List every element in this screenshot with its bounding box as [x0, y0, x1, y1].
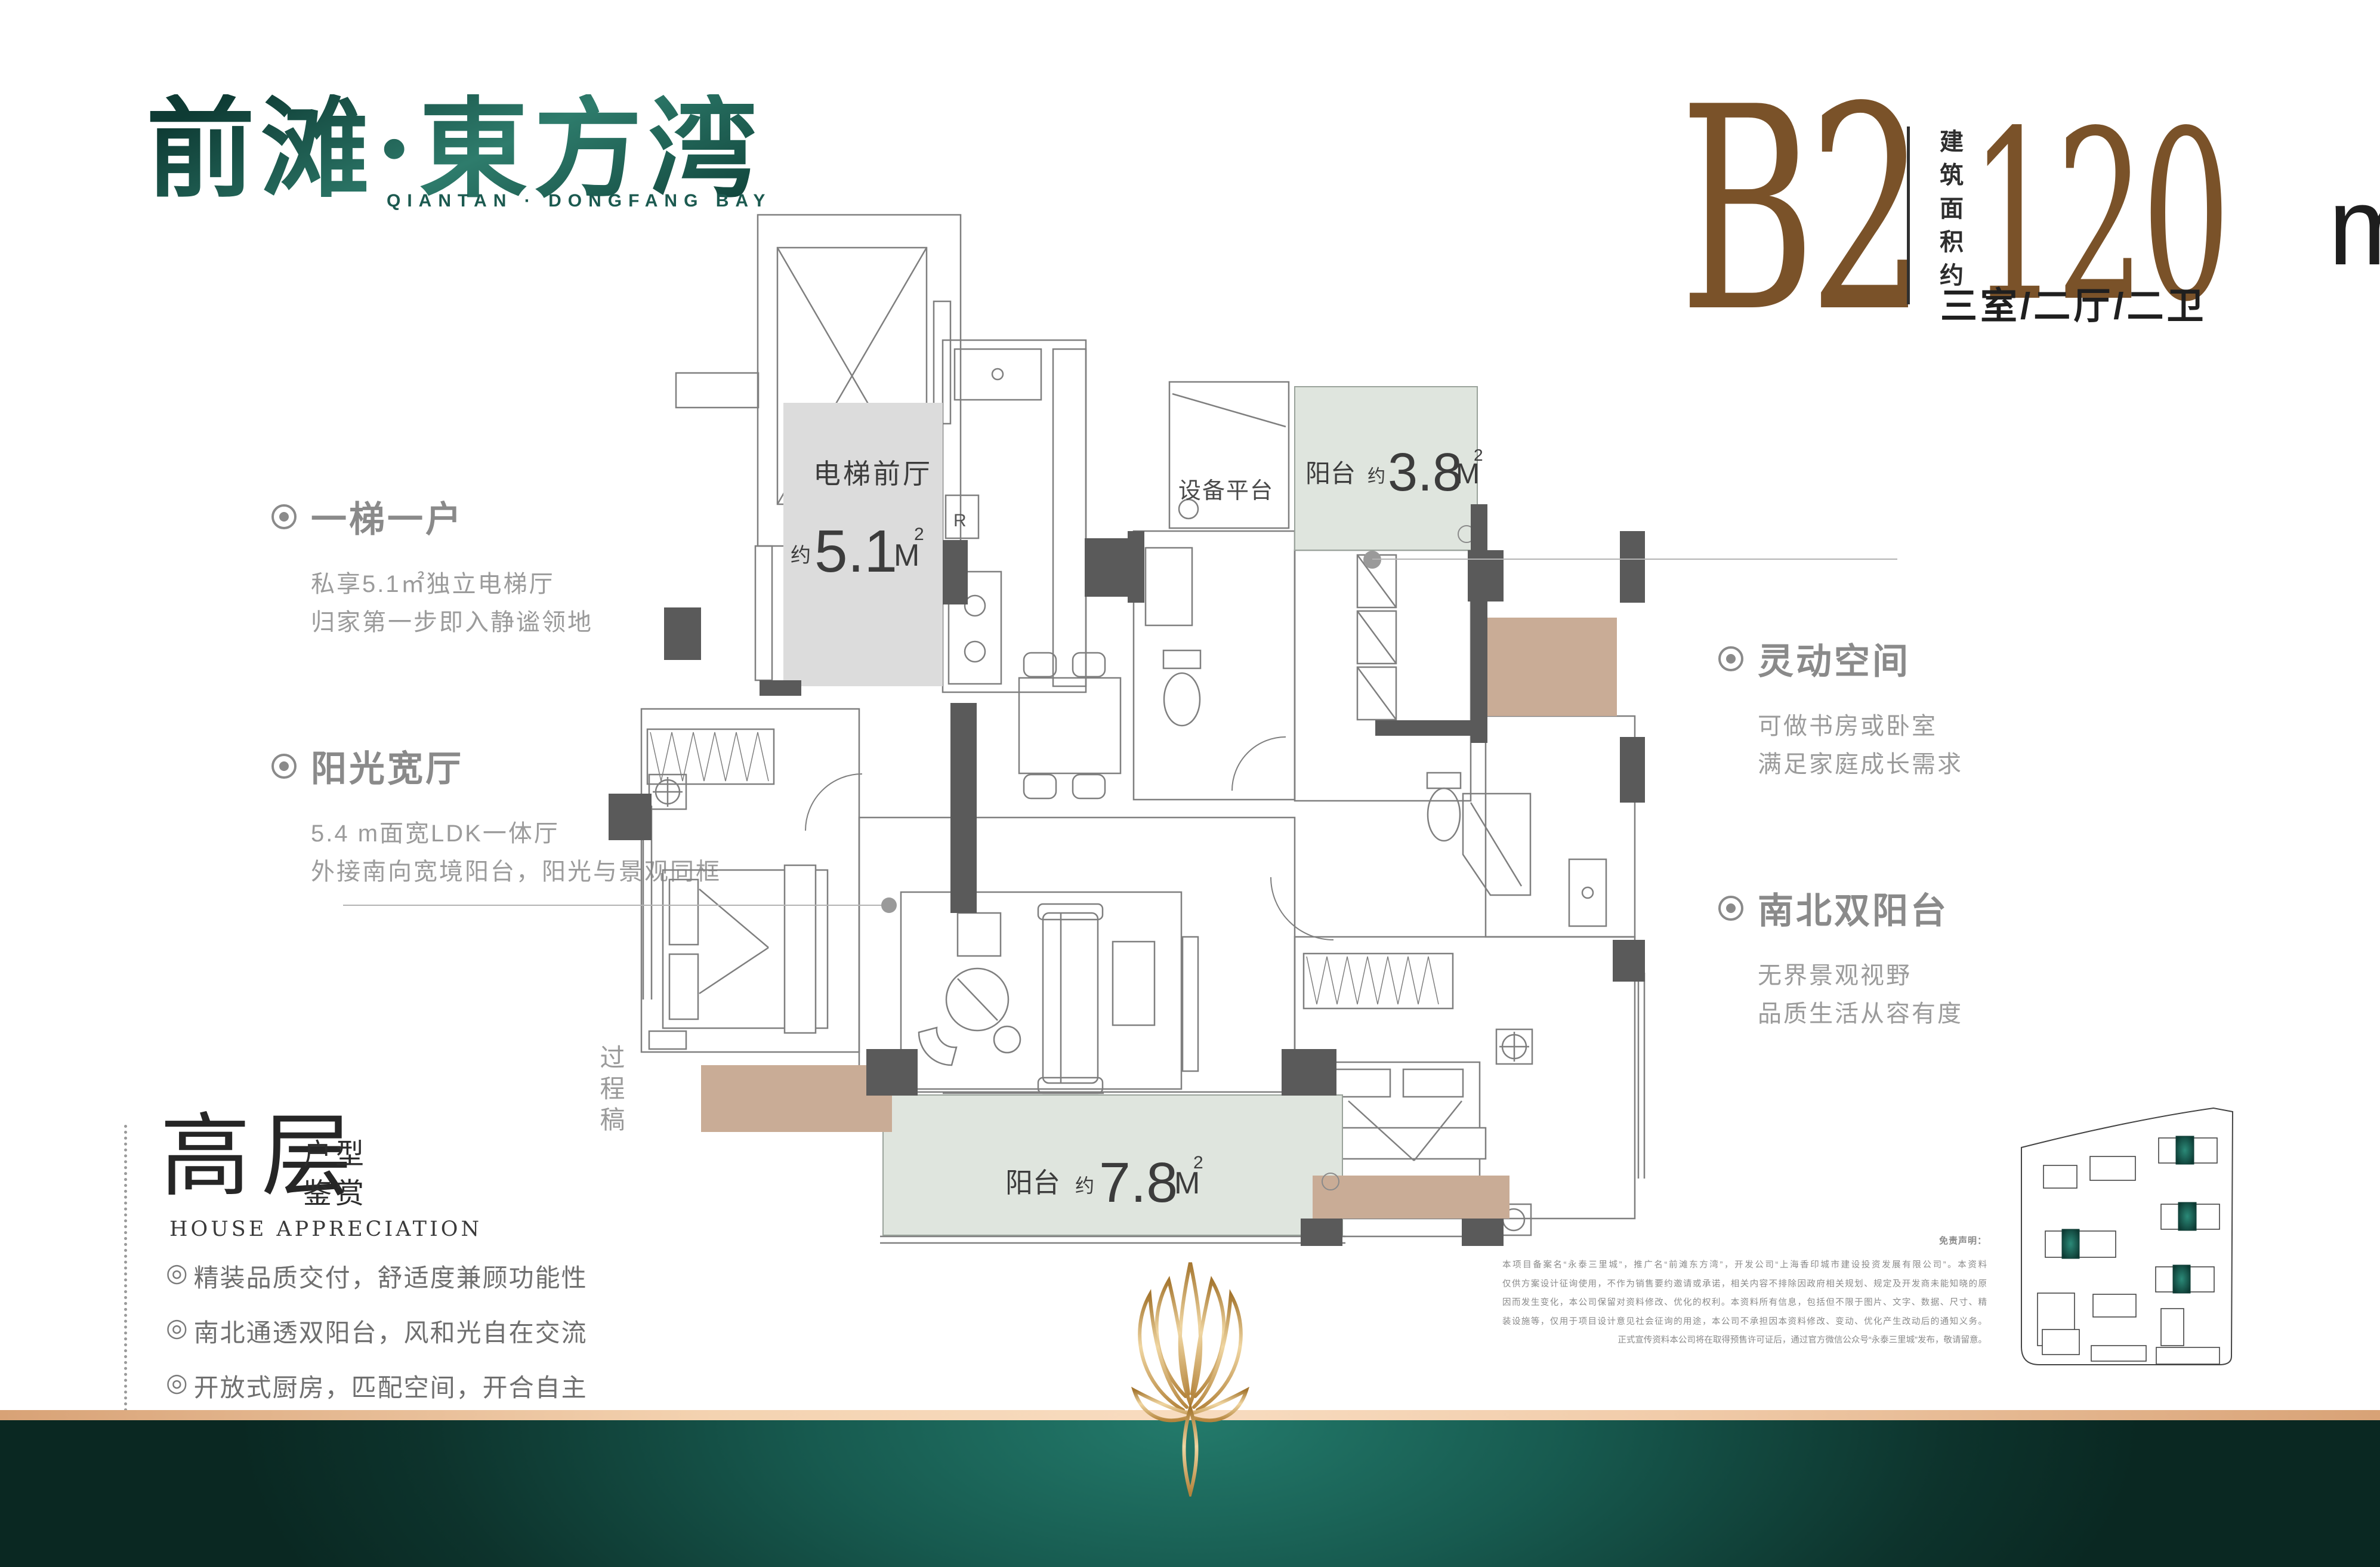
unit-room-config: 三室/二厅/二卫 [1940, 276, 2206, 329]
disclaimer-heading: 免责声明： [1502, 1234, 1987, 1247]
highlighted-unit [2062, 1229, 2079, 1258]
annotation-line: 无界景观视野 [1758, 957, 1963, 995]
appreciation-subtitle-cn: 鉴赏 [303, 1170, 368, 1211]
bathroom [1134, 531, 1295, 800]
annotation-title: 一梯一户 [311, 491, 464, 542]
appreciation-subtitle-cn: 户型 [303, 1130, 368, 1172]
annotation-line: 归家第一步即入静谧领地 [311, 603, 593, 641]
dotted-divider [124, 1125, 127, 1447]
wardrobe-fill [1313, 1176, 1510, 1219]
disclaimer-line: 仅供方案设计征询使用，不作为销售要约邀请或承诺，相关内容不排除因政府相关规划、规… [1502, 1275, 1987, 1294]
annotation-line: 满足家庭成长需求 [1758, 745, 1963, 783]
bullseye-icon [1718, 646, 1743, 671]
label-lobby-area: 5.1 [814, 518, 897, 585]
disclaimer-line: 本项目备案名“永泰三里城”，推广名“前滩东方湾”，开发公司“上海香印城市建设投资… [1502, 1256, 1987, 1275]
label-sup: 2 [914, 525, 924, 544]
annotation-double-balcony: 南北双阳台 无界景观视野 品质生活从容有度 [1718, 882, 1963, 1033]
ring-bullet-icon: ◎ [166, 1368, 189, 1397]
leader-line-living [343, 905, 889, 906]
label-approx: 约 [1075, 1175, 1094, 1196]
disclaimer: 免责声明： 本项目备案名“永泰三里城”，推广名“前滩东方湾”，开发公司“上海香印… [1502, 1234, 1987, 1350]
header-divider [1907, 127, 1910, 304]
site-plan [2011, 1095, 2249, 1381]
label-sup: 2 [1474, 446, 1483, 464]
highlighted-unit [2176, 1136, 2194, 1164]
disclaimer-line: 因而发生变化，本公司保留对资料修改、优化的权利。本资料所有信息，包括但不限于图片… [1502, 1294, 1987, 1313]
bullet-item: ◎精装品质交付，舒适度兼顾功能性 [166, 1258, 588, 1313]
bullseye-icon [1718, 896, 1743, 921]
flex-room [1295, 550, 1471, 801]
floor-plan: 电梯前厅 约 5.1 M 2 设备平台 阳台 约 3.8 M 2 阳台 约 7.… [609, 197, 1659, 1247]
label-balcony-south: 阳台 [1005, 1167, 1060, 1198]
area-unit: m [2328, 165, 2380, 288]
bedroom-left [641, 709, 859, 1052]
label-approx: 约 [791, 544, 811, 567]
highlighted-unit [2173, 1265, 2190, 1293]
bullet-item: ◎南北通透双阳台，风和光自在交流 [166, 1313, 588, 1368]
wardrobe-fill [1474, 618, 1617, 716]
annotation-title: 灵动空间 [1758, 633, 1910, 684]
label-balcony-south-area: 7.8 [1099, 1151, 1178, 1214]
appreciation-subtitle-en: HOUSE APPRECIATION [169, 1217, 482, 1241]
label-elevator-lobby: 电梯前厅 [813, 458, 933, 489]
annotation-flex-space: 灵动空间 可做书房或卧室 满足家庭成长需求 [1718, 633, 1963, 783]
label-equipment: 设备平台 [1178, 479, 1274, 504]
brand-logo-chinese: 前滩·東方湾 [146, 94, 763, 203]
sofa [1043, 913, 1098, 1083]
ring-bullet-icon: ◎ [166, 1313, 189, 1342]
annotation-line: 可做书房或卧室 [1758, 707, 1963, 745]
leader-dot [1363, 551, 1381, 569]
label-balcony-north-area: 3.8 [1388, 443, 1462, 502]
unit-code: B2 [1680, 70, 1919, 351]
annotation-line: 私享5.1㎡独立电梯厅 [311, 565, 593, 603]
annotation-title: 阳光宽厅 [311, 740, 464, 792]
wardrobe-fill [701, 1065, 892, 1132]
disclaimer-line: 装设施等，仅用于项目设计意见社会征询的用途，本公司不承担因本资料修改、变动、优化… [1502, 1313, 1987, 1332]
label-fridge: R [953, 511, 967, 530]
equipment-platform [1169, 382, 1289, 528]
annotation-line: 品质生活从容有度 [1758, 995, 1963, 1033]
lotus-emblem-icon [1119, 1258, 1262, 1497]
disclaimer-line: 正式宣传资料本公司将在取得预售许可证后，通过官方微信公众号“永泰三里城”发布，敬… [1502, 1331, 1987, 1350]
lounge-chair [919, 1028, 956, 1065]
highlighted-unit [2178, 1202, 2196, 1230]
master-bathroom [1486, 716, 1635, 937]
bullseye-icon [271, 754, 297, 779]
label-approx: 约 [1368, 467, 1385, 486]
leader-line-flex [1372, 559, 1897, 560]
label-balcony-north: 阳台 [1305, 459, 1356, 488]
bullseye-icon [271, 504, 297, 529]
process-draft-watermark: 过程稿 [592, 1044, 629, 1137]
annotation-elevator: 一梯一户 私享5.1㎡独立电梯厅 归家第一步即入静谧领地 [271, 491, 593, 641]
leader-dot [881, 897, 897, 913]
annotation-title: 南北双阳台 [1758, 882, 1949, 934]
ring-bullet-icon: ◎ [166, 1258, 189, 1287]
label-sup: 2 [1193, 1153, 1203, 1173]
